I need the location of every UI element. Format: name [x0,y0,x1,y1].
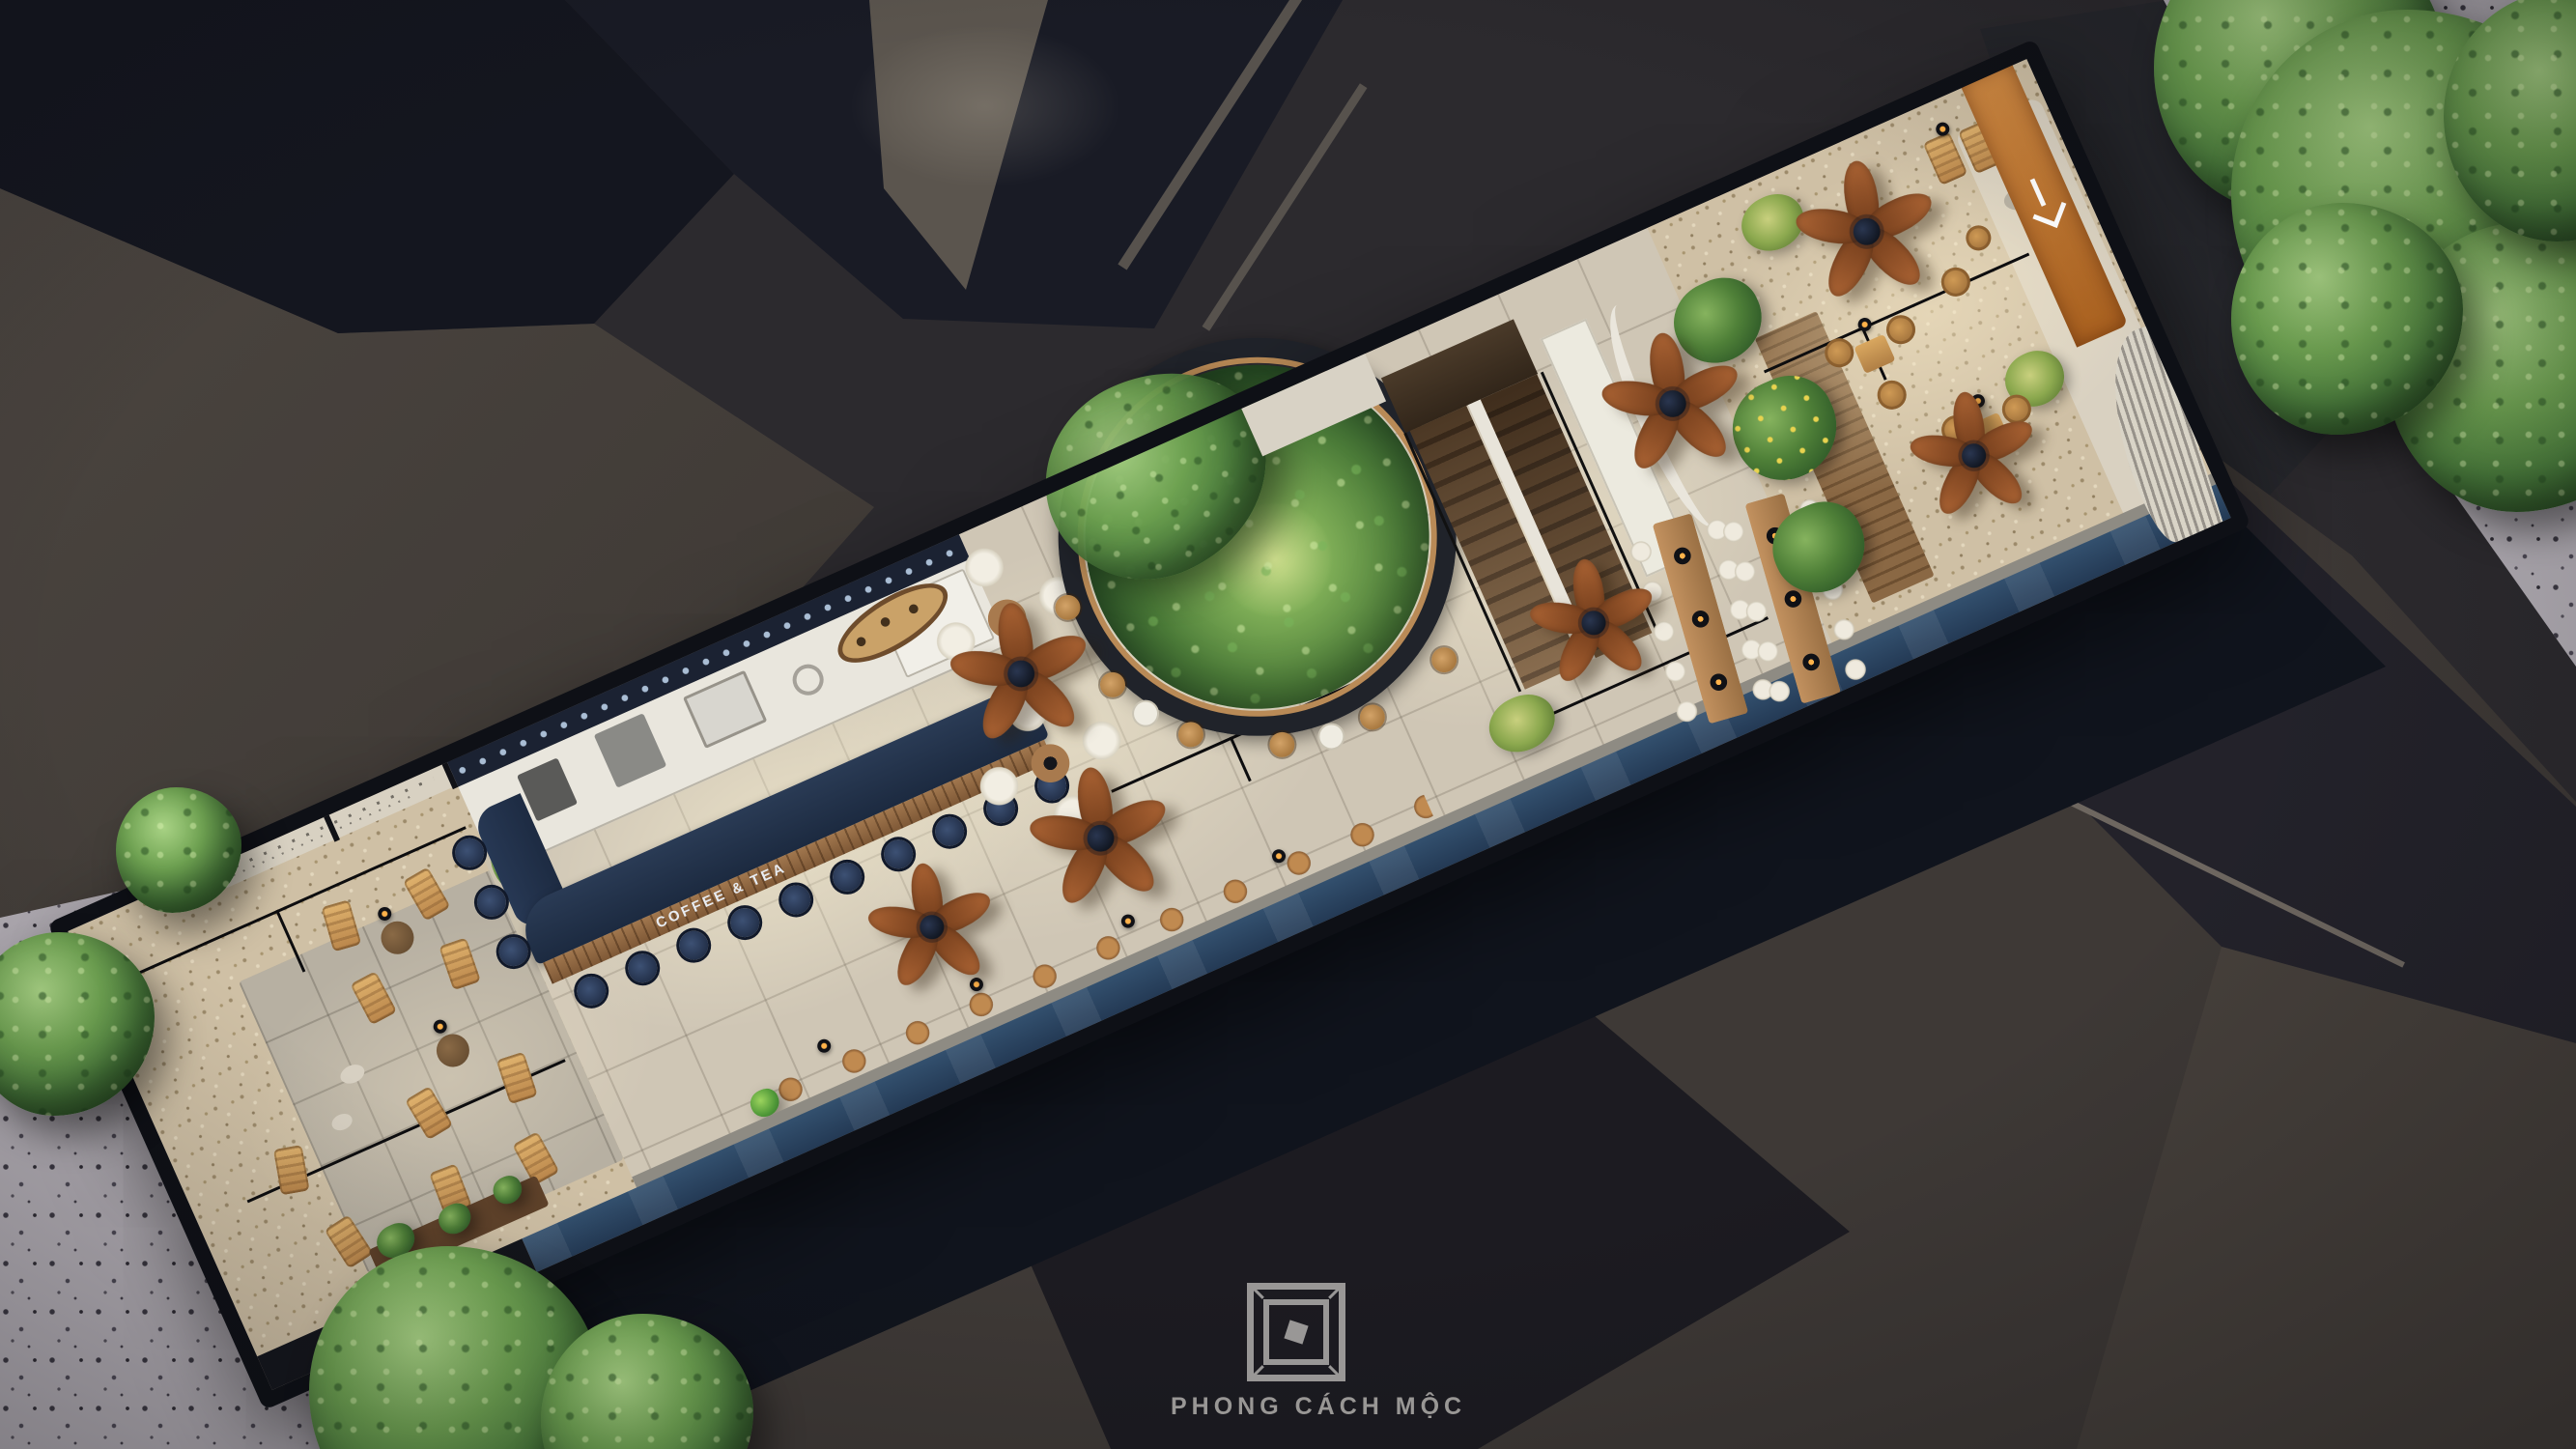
render-canvas: COFFEE & TEA [0,0,2576,1449]
logo-corner-line [1328,1365,1341,1378]
brand-watermark: PHONG CÁCH MỘC [1171,1283,1422,1421]
street-light-glow [782,0,1188,232]
logo-corner-line [1252,1365,1264,1378]
logo-corner-line [1328,1287,1341,1299]
brand-name: PHONG CÁCH MỘC [1171,1393,1422,1421]
logo-corner-line [1252,1287,1264,1299]
brand-logo-icon [1247,1283,1345,1381]
